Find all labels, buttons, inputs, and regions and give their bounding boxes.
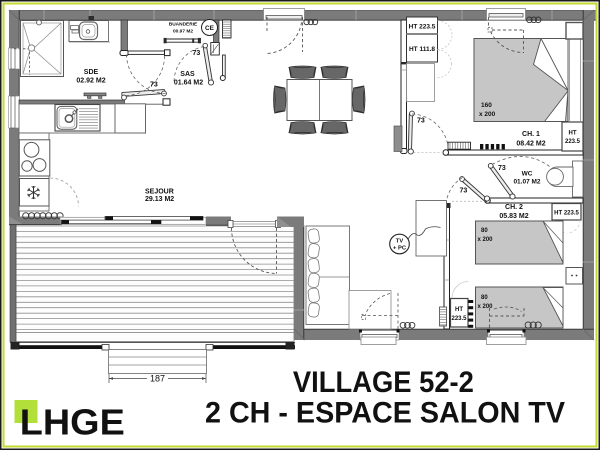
svg-text:HT: HT (569, 131, 577, 137)
svg-text:VILLAGE 52-2: VILLAGE 52-2 (293, 366, 474, 399)
svg-text:29.13 M2: 29.13 M2 (145, 196, 174, 203)
svg-text:SEJOUR: SEJOUR (145, 189, 174, 196)
svg-text:05.83 M2: 05.83 M2 (499, 213, 528, 220)
svg-text:+ PC: + PC (393, 246, 407, 252)
svg-text:WC: WC (522, 171, 533, 178)
svg-text:73: 73 (498, 165, 506, 172)
svg-text:HT: HT (455, 307, 463, 313)
svg-text:CH. 1: CH. 1 (522, 131, 540, 138)
svg-text:HT 111.8: HT 111.8 (409, 46, 435, 53)
svg-text:02.92 M2: 02.92 M2 (76, 78, 105, 85)
svg-text:73: 73 (150, 82, 158, 89)
svg-text:01.64 M2: 01.64 M2 (174, 80, 203, 87)
svg-text:BUANDERIE: BUANDERIE (169, 22, 198, 28)
svg-text:01.07 M2: 01.07 M2 (513, 179, 540, 186)
svg-text:HT 223.5: HT 223.5 (554, 211, 579, 217)
svg-text:187: 187 (150, 374, 165, 384)
svg-text:HT 223.5: HT 223.5 (409, 24, 436, 31)
svg-text:x 200: x 200 (478, 237, 494, 243)
svg-text:x 200: x 200 (479, 111, 496, 118)
svg-text:223.5: 223.5 (451, 316, 467, 322)
svg-text:73: 73 (460, 188, 468, 195)
svg-text:x 200: x 200 (478, 304, 494, 310)
svg-text:SAS: SAS (180, 71, 195, 78)
svg-text:08.42 M2: 08.42 M2 (516, 141, 545, 148)
svg-text:LHGE: LHGE (20, 401, 125, 442)
svg-text:80: 80 (481, 295, 488, 301)
svg-text:TV: TV (396, 239, 404, 245)
svg-text:2 CH - ESPACE SALON TV: 2 CH - ESPACE SALON TV (205, 397, 565, 430)
svg-text:00.97 M2: 00.97 M2 (173, 29, 193, 35)
svg-text:73: 73 (193, 50, 201, 57)
svg-text:223.5: 223.5 (565, 139, 581, 145)
svg-text:CH. 2: CH. 2 (505, 204, 523, 211)
svg-text:160: 160 (481, 102, 492, 109)
svg-text:80: 80 (481, 228, 488, 234)
svg-text:73: 73 (417, 118, 425, 125)
svg-text:CE: CE (205, 25, 215, 32)
svg-text:SDE: SDE (84, 69, 99, 76)
